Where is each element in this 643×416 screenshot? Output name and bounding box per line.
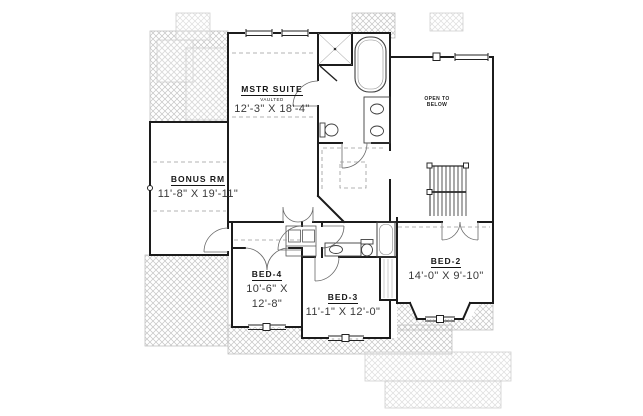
open-to-below-line2: BELOW: [417, 102, 457, 108]
window: [245, 29, 273, 37]
floor-plan-canvas: MSTR SUITE VAULTED 12'-3" X 18'-4" BONUS…: [0, 0, 643, 416]
window-marker: [148, 186, 153, 191]
label-open-to-below: OPEN TO BELOW: [417, 96, 457, 109]
floor-plan-drawing: [0, 0, 643, 416]
window: [281, 29, 309, 37]
